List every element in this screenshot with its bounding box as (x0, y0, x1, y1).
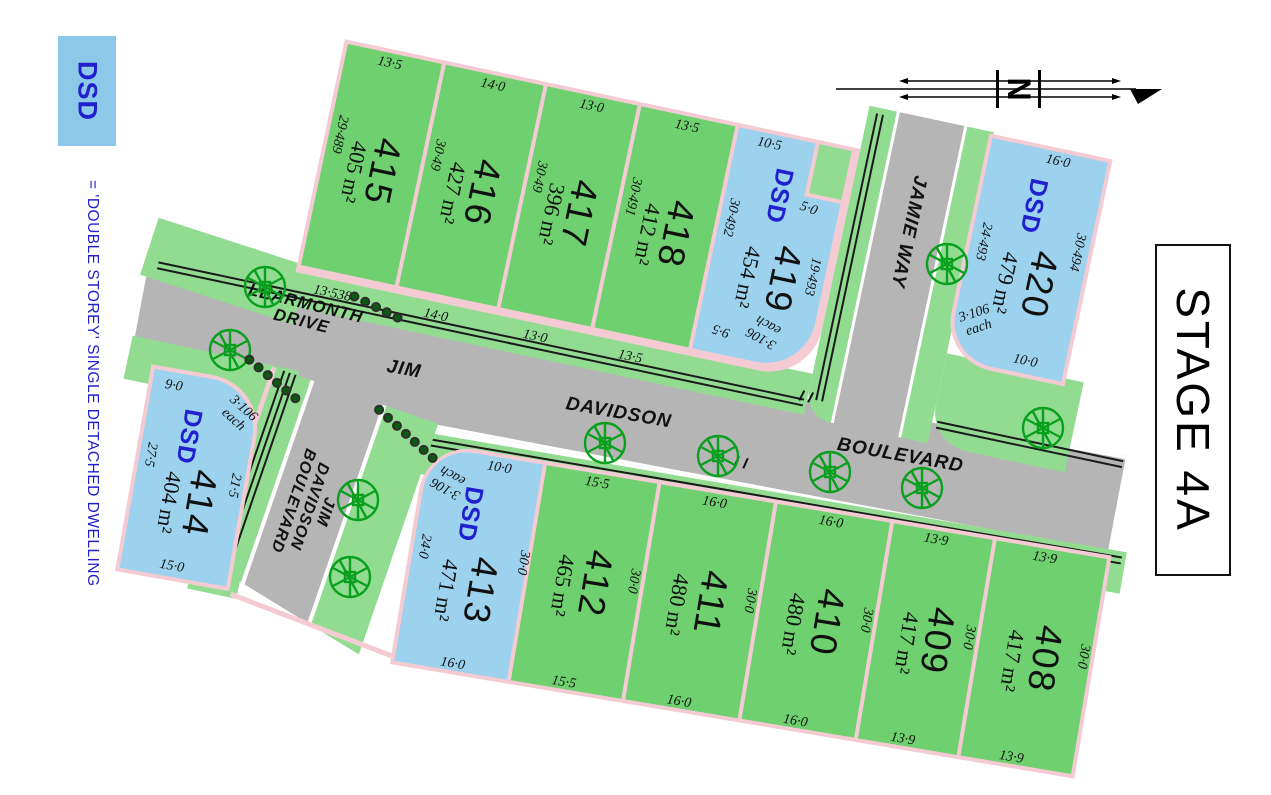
dim-left: 27·5 (140, 441, 160, 468)
dim-right: 30·0 (739, 587, 759, 614)
tree-icon (334, 476, 382, 524)
dim-bottom: 16·0 (782, 712, 809, 732)
stage-title-box: STAGE 4A (1155, 244, 1231, 576)
dsd-label: DSD (1014, 176, 1054, 237)
dsd-label: DSD (759, 165, 799, 226)
dim-bottom: 13·9 (889, 730, 916, 750)
dim-top: 9·0 (164, 377, 184, 396)
dim-right: 30·0 (1073, 643, 1093, 670)
lot-419-notch (804, 143, 851, 204)
tree-icon (581, 419, 629, 467)
dim-bottom: 9·5 (711, 319, 733, 340)
tree-icon (806, 448, 854, 496)
dim-top: 16·0 (817, 513, 844, 533)
legend-dsd-box: DSD (58, 36, 116, 146)
tree-icon (923, 240, 971, 288)
subdivision-plan: JIM DAVIDSON BOULEVARD JAMIE WAY 13·5 29… (0, 0, 1271, 795)
legend-dsd-abbr: DSD (72, 61, 103, 121)
dim-bottom: 15·5 (550, 673, 577, 693)
dim-right: 30·0 (856, 607, 876, 634)
legend-dsd-definition: = 'DOUBLE STOREY' SINGLE DETACHED DWELLI… (83, 180, 101, 672)
dim-top: 14·0 (479, 76, 506, 97)
dim-each: 3·106 each (744, 310, 786, 351)
tree-icon (898, 464, 946, 512)
dim-side: 30·492 (718, 197, 742, 238)
dim-bottom: 15·0 (158, 557, 185, 577)
tree-icon (206, 326, 254, 374)
dim-top: 13·9 (923, 531, 950, 551)
tree-icon (1019, 404, 1067, 452)
tree-icon (241, 263, 289, 311)
dim-top: 13·0 (578, 97, 605, 118)
north-arrow-icon: N (836, 66, 1162, 112)
dim-right: 30·0 (623, 568, 643, 595)
dim-bottom: 13·9 (998, 748, 1025, 768)
dim-bottom: 10·0 (1011, 351, 1038, 372)
dim-bottom: 16·0 (665, 692, 692, 712)
dim-top: 16·0 (701, 493, 728, 513)
dim-top: 13·5 (376, 54, 403, 75)
dim-right: 30·0 (958, 624, 978, 651)
dim-right: 21·5 (224, 472, 244, 499)
dim-top: 10·0 (486, 458, 513, 478)
dim-bottom: 16·0 (439, 654, 466, 674)
dim-top: 13·9 (1031, 549, 1058, 569)
dim-top: 10·5 (756, 134, 783, 155)
dim-right: 30·494 (1065, 232, 1089, 273)
dim-top: 13·5 (673, 117, 700, 138)
tree-icon (326, 553, 374, 601)
dim-left: 24·493 (971, 221, 995, 262)
dim-left: 24·0 (414, 533, 434, 560)
stage-title: STAGE 4A (1166, 287, 1220, 533)
north-label: N (1001, 77, 1037, 100)
dim-top: 16·0 (1044, 152, 1071, 173)
tree-icon (694, 432, 742, 480)
dim-notch: 5·0 (797, 199, 819, 220)
dsd-label: DSD (170, 406, 208, 466)
dim-top: 15·5 (584, 474, 611, 494)
